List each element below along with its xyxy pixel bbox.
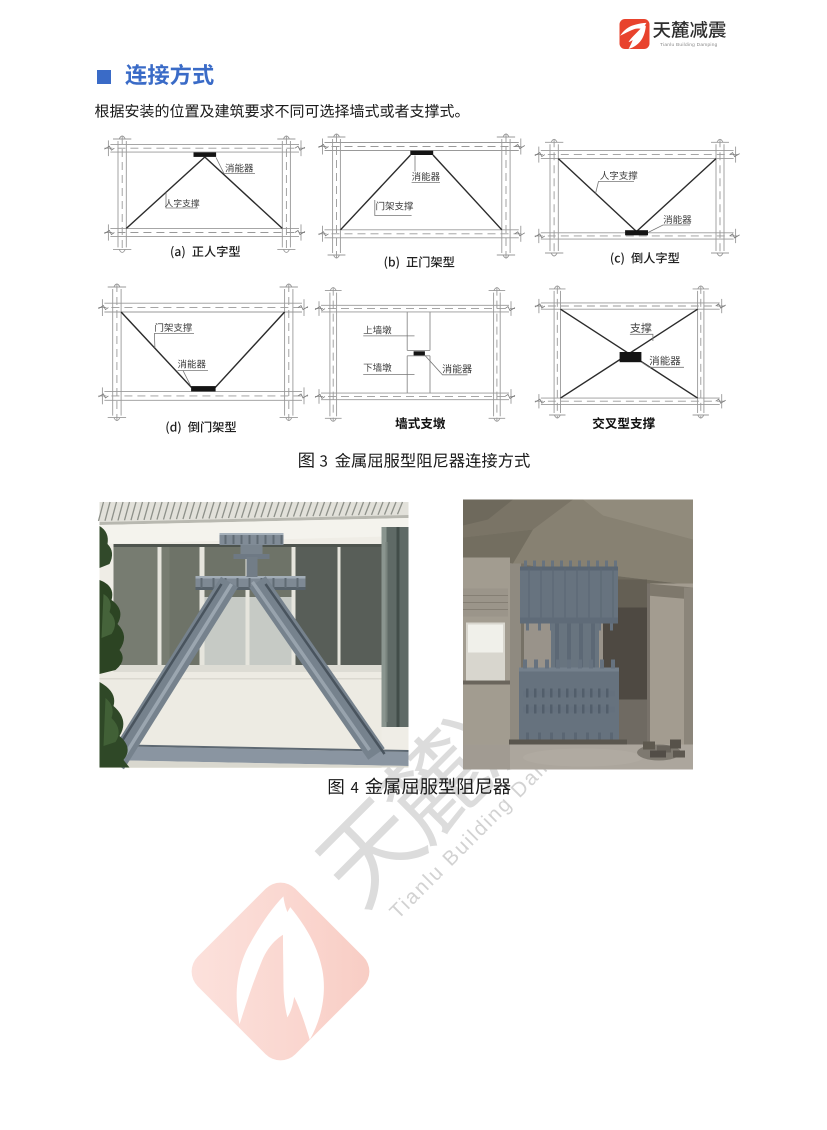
svg-text:Tianlu Building Damping: Tianlu Building Damping: [660, 42, 718, 48]
